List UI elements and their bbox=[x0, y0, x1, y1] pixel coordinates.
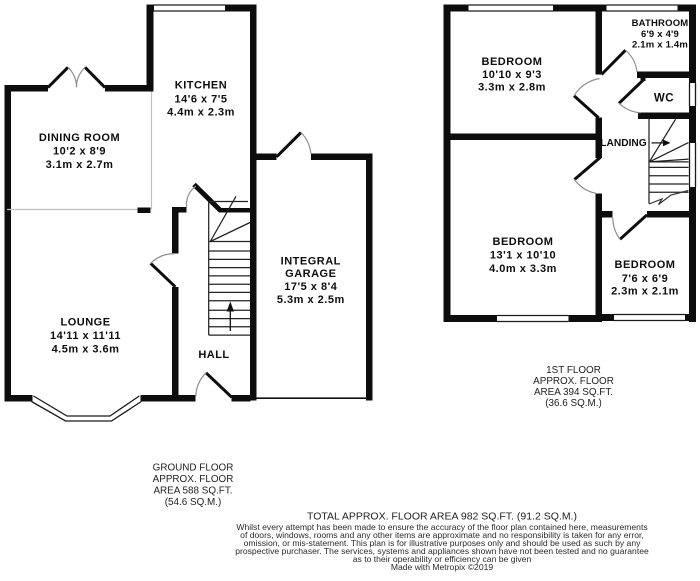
svg-text:BEDROOM: BEDROOM bbox=[482, 56, 543, 68]
svg-text:2.1m x 1.4m: 2.1m x 1.4m bbox=[632, 40, 688, 51]
svg-text:KITCHEN: KITCHEN bbox=[175, 80, 227, 92]
svg-text:LANDING: LANDING bbox=[600, 138, 646, 149]
svg-text:3.1m x 2.7m: 3.1m x 2.7m bbox=[46, 159, 114, 171]
svg-text:14'6 x 7'5: 14'6 x 7'5 bbox=[174, 94, 227, 106]
svg-text:WC: WC bbox=[654, 92, 674, 104]
svg-text:10'10 x 9'3: 10'10 x 9'3 bbox=[482, 69, 542, 81]
svg-text:BEDROOM: BEDROOM bbox=[493, 236, 554, 248]
svg-text:BATHROOM: BATHROOM bbox=[632, 18, 689, 29]
svg-text:7'6 x 6'9: 7'6 x 6'9 bbox=[622, 273, 668, 285]
svg-text:APPROX. FLOOR: APPROX. FLOOR bbox=[533, 376, 614, 387]
svg-text:GARAGE: GARAGE bbox=[285, 268, 336, 280]
svg-text:DINING ROOM: DINING ROOM bbox=[39, 132, 120, 144]
svg-text:Made with Metropix ©2019: Made with Metropix ©2019 bbox=[391, 562, 494, 572]
svg-text:BEDROOM: BEDROOM bbox=[615, 259, 676, 271]
svg-text:GROUND FLOOR: GROUND FLOOR bbox=[153, 462, 234, 473]
svg-text:AREA 394 SQ.FT.: AREA 394 SQ.FT. bbox=[534, 387, 613, 398]
svg-text:10'2 x 8'9: 10'2 x 8'9 bbox=[53, 145, 106, 157]
svg-text:3.3m x 2.8m: 3.3m x 2.8m bbox=[478, 82, 546, 94]
svg-text:4.4m x 2.3m: 4.4m x 2.3m bbox=[167, 107, 235, 119]
svg-text:5.3m x 2.5m: 5.3m x 2.5m bbox=[277, 294, 345, 306]
svg-text:(36.6 SQ.M.): (36.6 SQ.M.) bbox=[545, 398, 602, 409]
svg-text:4.5m x 3.6m: 4.5m x 3.6m bbox=[52, 343, 120, 355]
svg-text:17'5 x 8'4: 17'5 x 8'4 bbox=[284, 281, 337, 293]
svg-text:INTEGRAL: INTEGRAL bbox=[281, 255, 341, 267]
svg-text:14'11 x 11'11: 14'11 x 11'11 bbox=[50, 330, 121, 342]
svg-text:(54.6 SQ.M.): (54.6 SQ.M.) bbox=[165, 497, 222, 508]
svg-text:6'9 x 4'9: 6'9 x 4'9 bbox=[641, 29, 679, 40]
svg-text:LOUNGE: LOUNGE bbox=[60, 316, 110, 328]
svg-text:APPROX. FLOOR: APPROX. FLOOR bbox=[153, 474, 234, 485]
svg-text:AREA 588 SQ.FT.: AREA 588 SQ.FT. bbox=[153, 486, 232, 497]
svg-text:TOTAL APPROX. FLOOR AREA 982 S: TOTAL APPROX. FLOOR AREA 982 SQ.FT. (91.… bbox=[307, 511, 577, 523]
svg-text:2.3m x 2.1m: 2.3m x 2.1m bbox=[611, 285, 679, 297]
svg-text:4.0m x 3.3m: 4.0m x 3.3m bbox=[489, 263, 557, 275]
svg-text:1ST FLOOR: 1ST FLOOR bbox=[546, 365, 601, 376]
svg-text:HALL: HALL bbox=[198, 349, 229, 361]
svg-text:13'1 x 10'10: 13'1 x 10'10 bbox=[490, 249, 556, 261]
